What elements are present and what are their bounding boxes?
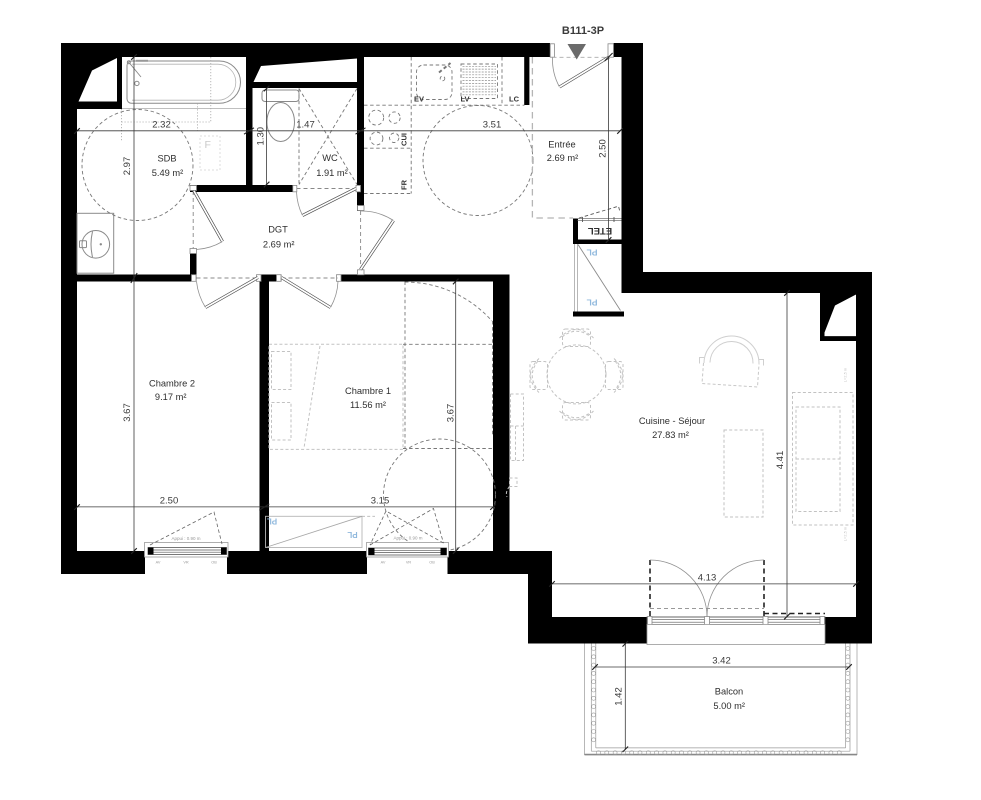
- svg-text:VR: VR: [183, 561, 189, 565]
- svg-text:WC: WC: [322, 153, 338, 163]
- svg-text:3.51: 3.51: [483, 120, 502, 131]
- svg-text:AV: AV: [381, 561, 386, 565]
- svg-text:B111-3P: B111-3P: [562, 25, 604, 37]
- svg-text:3.67: 3.67: [446, 404, 457, 423]
- svg-text:3.15: 3.15: [371, 496, 390, 507]
- svg-text:Entrée: Entrée: [548, 140, 575, 150]
- svg-text:2.69 m²: 2.69 m²: [547, 153, 579, 163]
- svg-text:Chambre 1: Chambre 1: [345, 386, 391, 396]
- svg-text:Balcon: Balcon: [715, 687, 743, 697]
- svg-text:LV: LV: [460, 95, 469, 104]
- svg-text:PL: PL: [267, 517, 277, 526]
- svg-text:DGT: DGT: [268, 224, 288, 234]
- svg-text:3.67: 3.67: [122, 403, 133, 422]
- svg-text:4.13: 4.13: [698, 573, 717, 584]
- svg-text:2.97: 2.97: [122, 157, 133, 176]
- svg-text:27.83 m²: 27.83 m²: [652, 430, 689, 440]
- svg-text:2.50: 2.50: [160, 496, 179, 507]
- svg-text:Appui : 0.90 m: Appui : 0.90 m: [393, 536, 422, 541]
- svg-text:5.49 m²: 5.49 m²: [152, 168, 184, 178]
- svg-text:CUI: CUI: [400, 133, 409, 146]
- svg-text:5.00 m²: 5.00 m²: [713, 701, 745, 711]
- svg-text:Chambre 2: Chambre 2: [149, 378, 195, 388]
- svg-text:11.56 m²: 11.56 m²: [350, 400, 386, 410]
- svg-text:1.42: 1.42: [614, 687, 625, 706]
- svg-text:OB: OB: [211, 561, 217, 565]
- svg-text:SDB: SDB: [157, 154, 176, 164]
- svg-text:2.32: 2.32: [152, 120, 171, 131]
- svg-text:L=2,5 m: L=2,5 m: [843, 367, 848, 382]
- svg-text:9.17 m²: 9.17 m²: [155, 392, 187, 402]
- svg-text:Appui : 0.90 m: Appui : 0.90 m: [171, 536, 200, 541]
- svg-text:AV: AV: [156, 561, 161, 565]
- svg-text:1.30: 1.30: [256, 127, 267, 146]
- svg-text:VR: VR: [406, 561, 412, 565]
- svg-text:L=2,5 m: L=2,5 m: [843, 526, 848, 541]
- svg-text:OB: OB: [429, 561, 435, 565]
- svg-text:4.41: 4.41: [775, 451, 786, 470]
- svg-text:PL: PL: [587, 298, 598, 308]
- svg-text:3.42: 3.42: [712, 656, 731, 667]
- svg-text:1.91 m²: 1.91 m²: [316, 168, 348, 178]
- svg-text:2.69 m²: 2.69 m²: [263, 240, 295, 250]
- svg-text:Cuisine - Séjour: Cuisine - Séjour: [639, 416, 705, 426]
- svg-text:PL: PL: [347, 530, 357, 539]
- svg-text:LC: LC: [509, 95, 520, 104]
- svg-text:F: F: [205, 139, 211, 151]
- svg-text:EV: EV: [414, 95, 424, 104]
- svg-text:FR: FR: [400, 179, 409, 190]
- svg-text:PL: PL: [587, 248, 598, 258]
- svg-text:2.50: 2.50: [598, 139, 609, 158]
- svg-text:1.47: 1.47: [296, 120, 315, 131]
